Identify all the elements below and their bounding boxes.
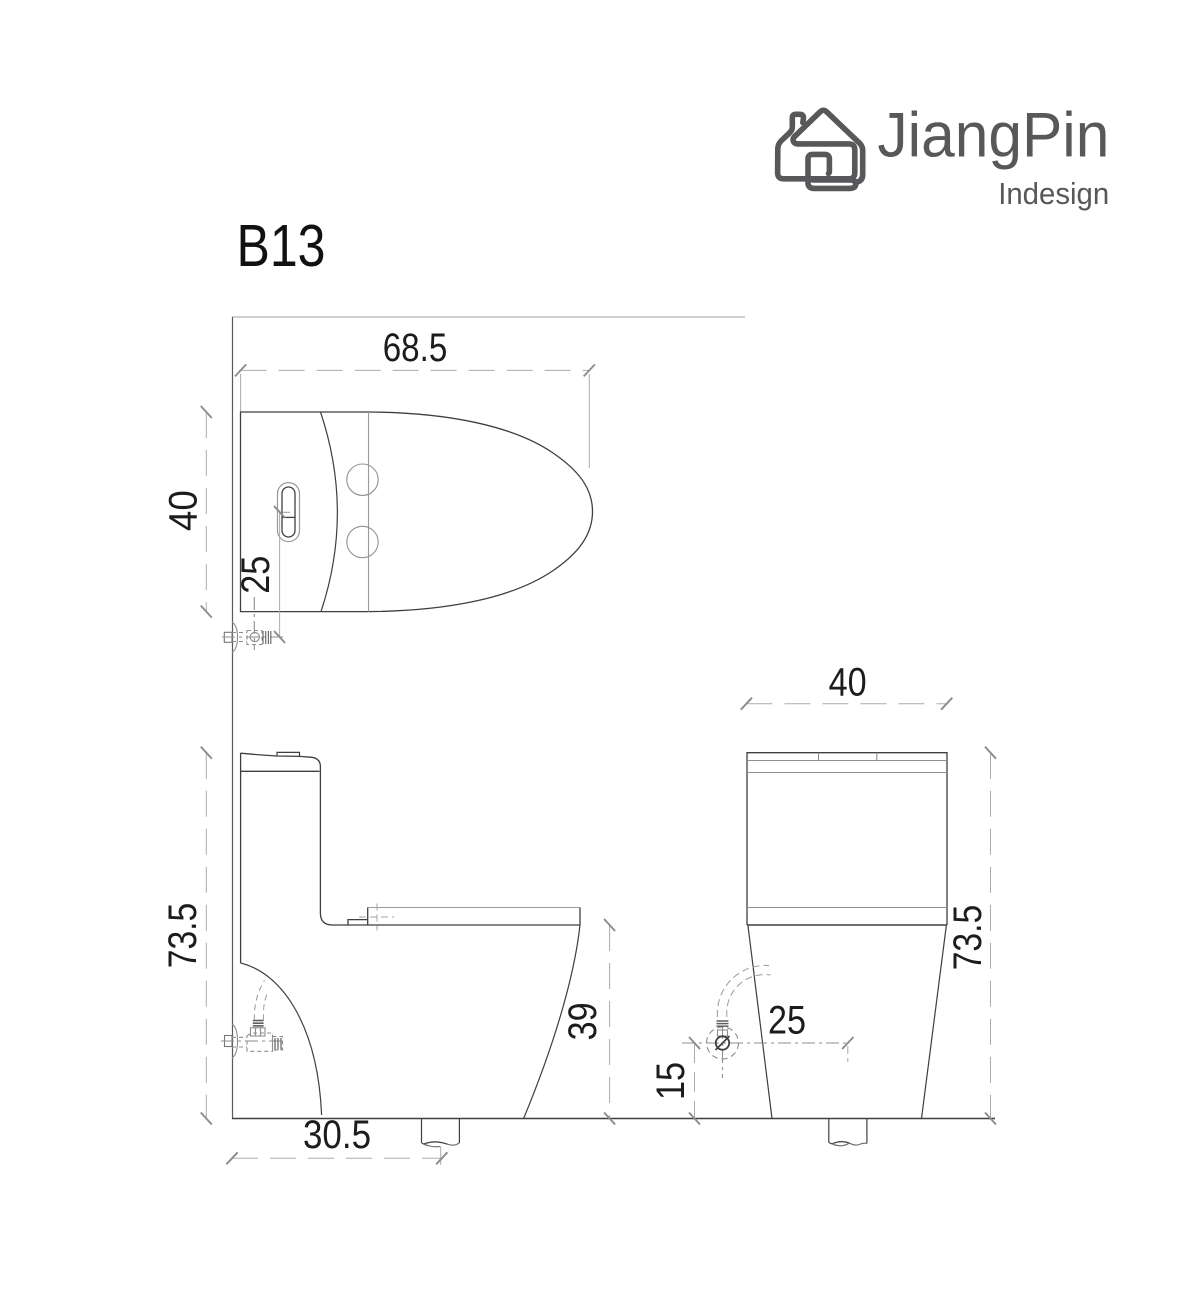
svg-text:25: 25	[768, 999, 806, 1043]
svg-text:JiangPin: JiangPin	[877, 101, 1109, 171]
svg-text:15: 15	[649, 1062, 693, 1100]
svg-text:68.5: 68.5	[383, 326, 448, 370]
svg-text:40: 40	[162, 490, 206, 531]
svg-text:25: 25	[234, 556, 278, 594]
svg-text:73.5: 73.5	[161, 903, 205, 969]
svg-text:B13: B13	[237, 213, 326, 279]
svg-text:30.5: 30.5	[303, 1113, 371, 1157]
svg-text:73.5: 73.5	[946, 905, 990, 971]
svg-text:Indesign: Indesign	[998, 176, 1109, 211]
svg-text:40: 40	[829, 661, 867, 705]
svg-text:39: 39	[561, 1002, 605, 1040]
